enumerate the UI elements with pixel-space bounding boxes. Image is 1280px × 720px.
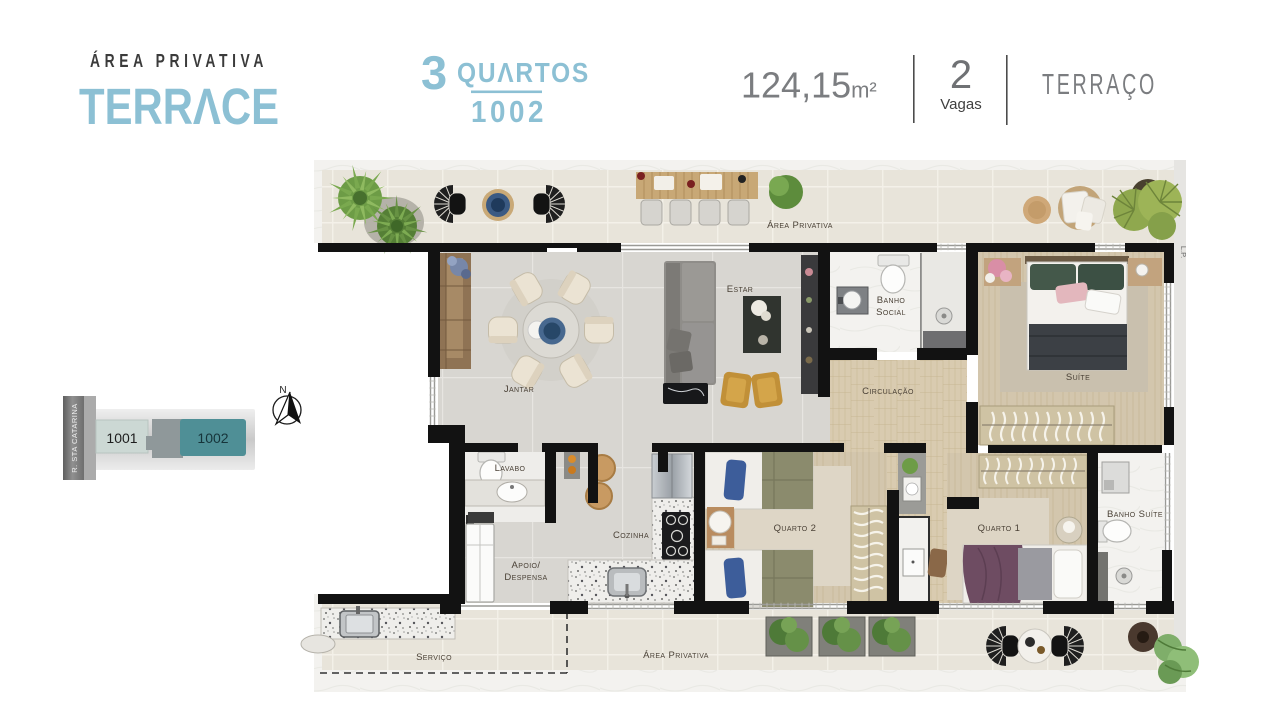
svg-text:1001: 1001 bbox=[106, 430, 137, 446]
svg-text:Social: Social bbox=[876, 307, 906, 318]
svg-text:3: 3 bbox=[421, 46, 447, 99]
svg-text:R. STA CATARINA: R. STA CATARINA bbox=[70, 403, 79, 473]
svg-text:QUΛRTOS: QUΛRTOS bbox=[457, 57, 590, 88]
svg-text:TERRΛCE: TERRΛCE bbox=[79, 78, 279, 135]
svg-text:1002: 1002 bbox=[197, 430, 228, 446]
svg-text:Vagas: Vagas bbox=[940, 96, 981, 113]
svg-text:Estar: Estar bbox=[727, 284, 754, 295]
svg-text:Quarto 2: Quarto 2 bbox=[774, 523, 817, 534]
svg-text:Apoio/: Apoio/ bbox=[512, 560, 541, 571]
svg-text:Lavabo: Lavabo bbox=[495, 463, 526, 474]
svg-text:Área Privativa: Área Privativa bbox=[643, 650, 709, 661]
svg-text:Cozinha: Cozinha bbox=[613, 530, 649, 541]
svg-text:Suíte: Suíte bbox=[1066, 372, 1090, 383]
svg-text:2: 2 bbox=[950, 53, 972, 97]
svg-text:L.P.: L.P. bbox=[1179, 246, 1188, 258]
svg-text:Banho Suíte: Banho Suíte bbox=[1107, 509, 1163, 520]
svg-text:Quarto 1: Quarto 1 bbox=[978, 523, 1021, 534]
svg-text:Área Privativa: Área Privativa bbox=[767, 220, 833, 231]
svg-text:Circulação: Circulação bbox=[862, 386, 914, 397]
svg-text:Banho: Banho bbox=[877, 295, 906, 306]
svg-text:Jantar: Jantar bbox=[504, 384, 534, 395]
svg-text:ÁREA PRIVATIVA: ÁREA PRIVATIVA bbox=[90, 50, 268, 71]
svg-text:TERRAÇO: TERRAÇO bbox=[1042, 69, 1157, 101]
svg-text:1002: 1002 bbox=[471, 94, 547, 129]
svg-text:N: N bbox=[279, 385, 286, 396]
svg-text:Serviço: Serviço bbox=[416, 652, 452, 663]
svg-text:Despensa: Despensa bbox=[504, 572, 547, 583]
